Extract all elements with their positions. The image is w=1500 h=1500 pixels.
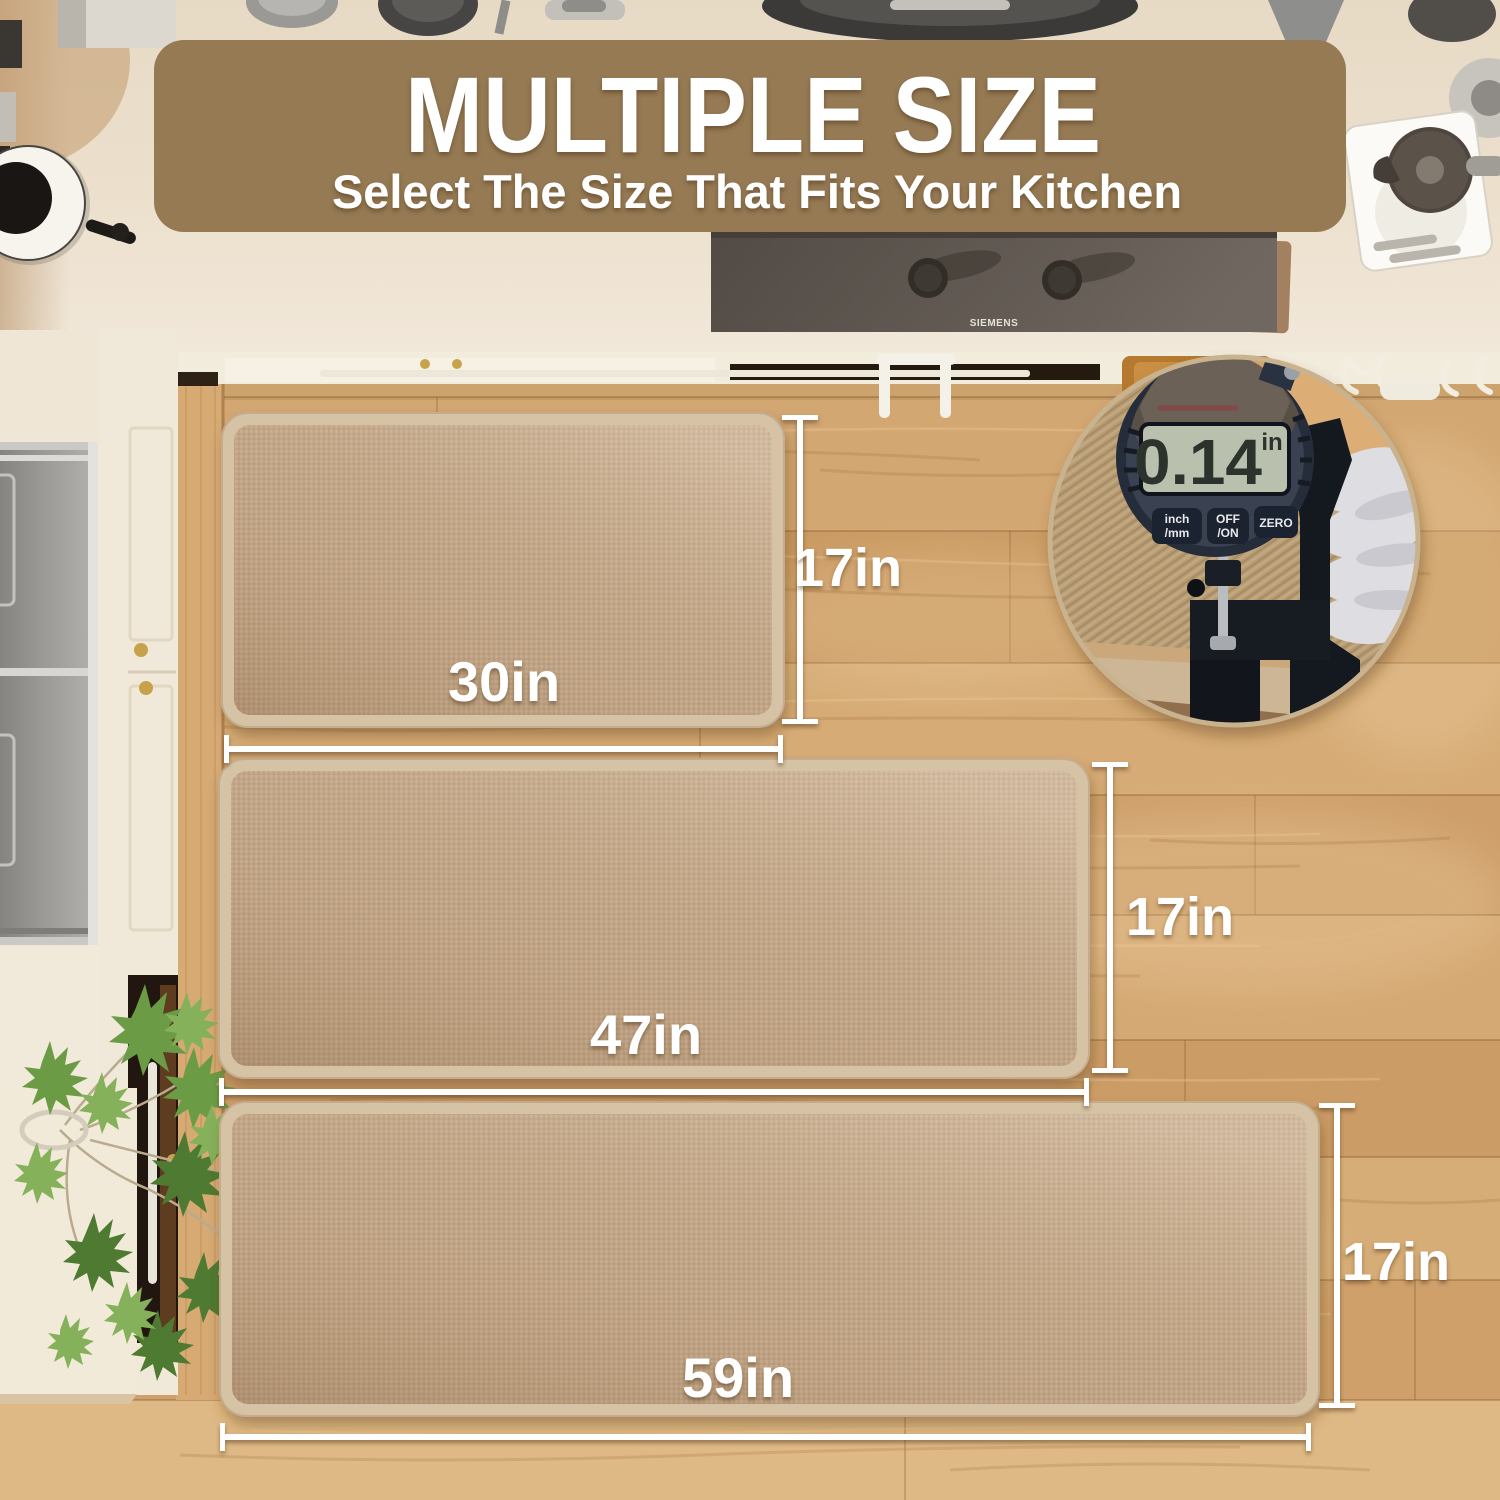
svg-text:ZERO: ZERO: [1259, 516, 1292, 530]
svg-text:inch: inch: [1165, 512, 1190, 526]
svg-text:17in: 17in: [1342, 1232, 1450, 1292]
svg-text:MULTIPLE SIZE: MULTIPLE SIZE: [405, 54, 1101, 175]
svg-text:OFF: OFF: [1216, 512, 1240, 526]
svg-text:in: in: [1261, 429, 1282, 456]
svg-text:30in: 30in: [448, 650, 560, 713]
svg-text:59in: 59in: [682, 1346, 794, 1409]
svg-text:Select The Size That Fits Your: Select The Size That Fits Your Kitchen: [332, 165, 1182, 218]
svg-text:/mm: /mm: [1165, 526, 1190, 540]
svg-text:47in: 47in: [590, 1003, 702, 1066]
svg-text:17in: 17in: [794, 538, 902, 598]
svg-text:0.14: 0.14: [1134, 426, 1262, 498]
svg-text:17in: 17in: [1126, 887, 1234, 947]
svg-text:SIEMENS: SIEMENS: [970, 318, 1019, 329]
svg-text:/ON: /ON: [1217, 526, 1238, 540]
